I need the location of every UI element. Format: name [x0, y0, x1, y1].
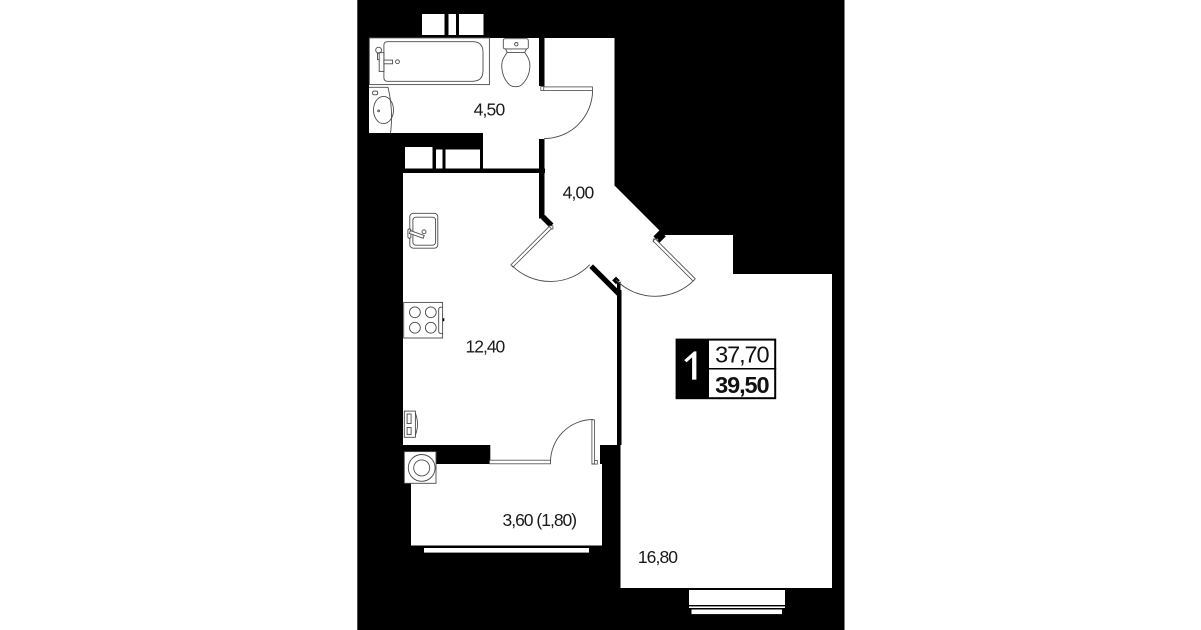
svg-text:39,50: 39,50 — [715, 372, 769, 398]
svg-text:4,00: 4,00 — [563, 182, 595, 202]
svg-text:12,40: 12,40 — [466, 336, 506, 356]
svg-text:16,80: 16,80 — [638, 547, 678, 567]
svg-text:3,60 (1,80): 3,60 (1,80) — [502, 510, 576, 530]
svg-text:37,70: 37,70 — [715, 341, 769, 367]
svg-text:4,50: 4,50 — [474, 99, 506, 119]
